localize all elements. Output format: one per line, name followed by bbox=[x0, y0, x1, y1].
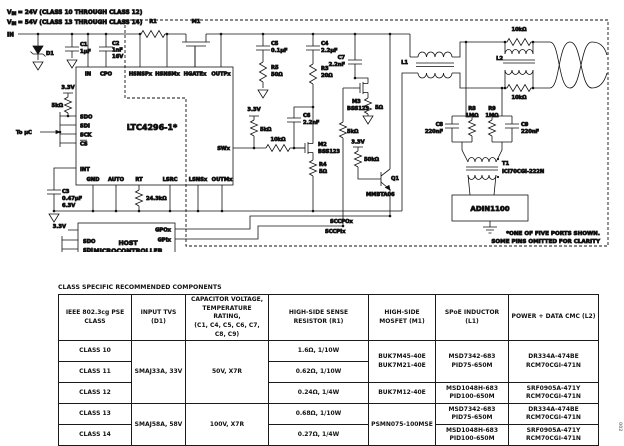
ic-name: LTC4296-1* bbox=[127, 123, 178, 132]
c6-label: C6 bbox=[303, 113, 311, 119]
capacitor-c4 bbox=[306, 46, 320, 50]
earth-ground bbox=[483, 227, 497, 233]
l2-part-line2: RCM70CGI-471N bbox=[511, 414, 596, 423]
header-r1-line1: HIGH-SIDE SENSE bbox=[271, 309, 366, 318]
capacitor-c8 bbox=[445, 124, 459, 128]
m3-source-value: 5Ω bbox=[375, 105, 384, 111]
cell-m1-class13-14: PSMN075-100MSE bbox=[369, 404, 436, 446]
pin-auto: AUTO bbox=[108, 177, 125, 183]
cell-cap-class13-14: 100V, X7R bbox=[186, 404, 269, 446]
host-name-2: MICROCONTROLLER bbox=[93, 248, 162, 252]
inductor-l1 bbox=[416, 52, 454, 78]
mosfet-m2 bbox=[294, 142, 308, 154]
resistor-r5 bbox=[258, 62, 268, 98]
cell-l2-class10-11: DR334A-474BE RCM70CGI-471N bbox=[509, 341, 599, 383]
c8-label: C8 bbox=[436, 122, 444, 128]
pin-outpx: OUTPx bbox=[211, 72, 231, 78]
r5-value: 50Ω bbox=[271, 72, 283, 78]
l1-part-line2: PID100-650M bbox=[438, 393, 506, 402]
cmc-l2 bbox=[503, 39, 535, 92]
c3-label: C3 bbox=[62, 189, 70, 195]
adin1100-label: ADIN1100 bbox=[470, 205, 509, 213]
components-table: IEEE 802.3cg PSE CLASS INPUT TVS (D1) CA… bbox=[58, 294, 599, 446]
m1-label: M1 bbox=[192, 19, 201, 25]
cell-r1-class13: 0.68Ω, 1/10W bbox=[269, 404, 369, 425]
l2-part-line1: SRF0905A-471Y bbox=[511, 385, 596, 394]
capacitor-c5 bbox=[256, 46, 270, 50]
host-name-1: HOST bbox=[118, 240, 138, 247]
pin-sck: SCK bbox=[80, 133, 93, 139]
q1-base-value: 50kΩ bbox=[364, 157, 380, 163]
r4-label: R4 bbox=[319, 162, 327, 168]
sw-3v3-label: 3.3V bbox=[247, 107, 260, 113]
header-m1-line1: HIGH-SIDE bbox=[371, 309, 433, 318]
pin-lsnsx: LSNSx bbox=[189, 177, 208, 183]
cell-l1-class10-11: MSD7342-683 PID75-650M bbox=[436, 341, 509, 383]
c9-label: C9 bbox=[521, 122, 529, 128]
table-row-class10: CLASS 10 SMAJ33A, 33V 50V, X7R 1.6Ω, 1/1… bbox=[59, 341, 599, 362]
c8-value: 220nF bbox=[425, 129, 444, 135]
cell-l2-class13: DR334A-474BE RCM70CGI-471N bbox=[509, 404, 599, 425]
to-uc-label: To µC bbox=[16, 130, 32, 136]
resistor-q1-base bbox=[355, 151, 362, 167]
pin-hgatex: HGATEx bbox=[184, 72, 207, 78]
transformer-t1 bbox=[466, 158, 498, 180]
capacitor-c9 bbox=[505, 124, 519, 128]
c3-voltage: 6.3V bbox=[62, 203, 75, 209]
twisted-pair-cable bbox=[550, 42, 607, 88]
pin-swx: SWx bbox=[217, 146, 230, 152]
capacitor-c6 bbox=[287, 118, 301, 122]
m1-part-line2: BUK7M21-40E bbox=[371, 362, 433, 371]
c1-label: C1 bbox=[80, 42, 88, 48]
resistor-rt bbox=[136, 190, 143, 206]
c1-value: 1µF bbox=[80, 49, 91, 55]
r3-value: 20Ω bbox=[321, 73, 333, 79]
cell-l1-class12: MSD1048H-683 PID100-650M bbox=[436, 383, 509, 404]
d1-label: D1 bbox=[46, 51, 54, 57]
spi-pullup-value: 5kΩ bbox=[52, 103, 64, 109]
cell-tvs-class10-12: SMAJ33A, 33V bbox=[132, 341, 186, 404]
resistor-r3 bbox=[310, 64, 317, 84]
l1-part-line2: PID75-650M bbox=[438, 414, 506, 423]
r8-label: R8 bbox=[468, 106, 476, 112]
l2-part-line1: DR334A-474BE bbox=[511, 353, 596, 362]
l1-part-line1: MSD1048H-683 bbox=[438, 385, 506, 394]
sccpix-label: SCCPIx bbox=[325, 229, 346, 235]
pin-rt: RT bbox=[135, 177, 143, 183]
resistor-sw-pullup bbox=[251, 120, 258, 136]
header-cap-line2: TEMPERATURE RATING, bbox=[188, 305, 266, 322]
cell-class14: CLASS 14 bbox=[59, 425, 132, 446]
datasheet-page: { "schematic": { "vin1": {"v":"V","sub":… bbox=[0, 0, 624, 441]
table-title: CLASS SPECIFIC RECOMMENDED COMPONENTS bbox=[58, 284, 624, 291]
resistor-r4 bbox=[310, 160, 317, 176]
l2-rtop-value: 10kΩ bbox=[511, 27, 527, 33]
pin-sdo: SDO bbox=[80, 115, 93, 121]
resistor-spi-pullup bbox=[65, 97, 72, 113]
header-sense-resistor: HIGH-SIDE SENSE RESISTOR (R1) bbox=[269, 295, 369, 341]
l2-part-line1: SRF0905A-471Y bbox=[511, 427, 596, 436]
header-power-data-cmc: POWER + DATA CMC (L2) bbox=[509, 295, 599, 341]
pin-sdi: SDI bbox=[80, 124, 90, 130]
pin-hsnspx: HSNSPx bbox=[129, 72, 153, 78]
cell-r1-class11: 0.62Ω, 1/10W bbox=[269, 362, 369, 383]
transistor-q1 bbox=[381, 169, 390, 190]
cell-r1-class10: 1.6Ω, 1/10W bbox=[269, 341, 369, 362]
cell-tvs-class13-14: SMAJ58A, 58V bbox=[132, 404, 186, 446]
resistor-r8 bbox=[469, 120, 476, 136]
c2-label: C2 bbox=[112, 41, 120, 47]
header-pse-class: IEEE 802.3cg PSE CLASS bbox=[59, 295, 132, 341]
sw-series-value: 10kΩ bbox=[270, 137, 286, 143]
header-input-tvs: INPUT TVS (D1) bbox=[132, 295, 186, 341]
l2-part-line2: RCM70CGI-471N bbox=[511, 435, 596, 444]
pin-hsnsmx: HSNSMx bbox=[155, 72, 180, 78]
l1-label: L1 bbox=[401, 60, 408, 66]
c5-label: C5 bbox=[271, 41, 279, 47]
mosfet-m3 bbox=[360, 82, 363, 94]
q1-part: MMBTA06 bbox=[366, 192, 395, 198]
c4-value: 2.2µF bbox=[321, 48, 338, 54]
cell-cap-class10-12: 50V, X7R bbox=[186, 341, 269, 404]
c2-value: 1nF bbox=[112, 48, 123, 54]
r9-value: 1MΩ bbox=[485, 113, 499, 119]
t1-part: ICI70CGI-222N bbox=[502, 169, 544, 175]
cell-class13: CLASS 13 bbox=[59, 404, 132, 425]
in-label: IN bbox=[7, 33, 14, 39]
header-cap-rating: CAPACITOR VOLTAGE, TEMPERATURE RATING, (… bbox=[186, 295, 269, 341]
header-spoe-inductor: SPoE INDUCTOR (L1) bbox=[436, 295, 509, 341]
header-row: IEEE 802.3cg PSE CLASS INPUT TVS (D1) CA… bbox=[59, 295, 599, 341]
schematic: VIN= 24V (CLASS 10 THROUGH CLASS 12) VIN… bbox=[0, 0, 624, 252]
l1-part-line2: PID75-650M bbox=[438, 362, 506, 371]
cell-l1-class13: MSD7342-683 PID75-650M bbox=[436, 404, 509, 425]
r1-label: R1 bbox=[149, 19, 157, 25]
figure-id: 002 bbox=[617, 422, 622, 431]
resistor-m3-pulldown bbox=[340, 122, 347, 138]
cell-class11: CLASS 11 bbox=[59, 362, 132, 383]
c4-label: C4 bbox=[321, 41, 329, 47]
c5-value: 0.1µF bbox=[271, 48, 288, 54]
l2-part-line1: DR334A-474BE bbox=[511, 406, 596, 415]
r9-label: R9 bbox=[488, 106, 496, 112]
pin-lsrc: LSRC bbox=[163, 177, 178, 183]
cell-m1-class12: BUK7M12-40E bbox=[369, 383, 436, 404]
resistor-r1 bbox=[141, 31, 165, 38]
cell-class12: CLASS 12 bbox=[59, 383, 132, 404]
resistor-r9 bbox=[489, 120, 496, 136]
t1-label: T1 bbox=[502, 161, 510, 167]
capacitor-c7 bbox=[348, 60, 362, 64]
cell-l2-class12: SRF0905A-471Y RCM70CGI-471N bbox=[509, 383, 599, 404]
sw-pullup-value: 5kΩ bbox=[260, 127, 272, 133]
c9-value: 220nF bbox=[521, 129, 540, 135]
m3-part: BSS123 bbox=[347, 106, 369, 112]
port-note-1: *ONE OF FIVE PORTS SHOWN. bbox=[506, 231, 600, 237]
c7-label: C7 bbox=[338, 55, 346, 61]
cell-l1-class14: MSD1048H-683 PID100-650M bbox=[436, 425, 509, 446]
c7-value: 2.2nF bbox=[329, 62, 346, 68]
host-3v3-label: 3.3V bbox=[53, 224, 66, 230]
r5-label: R5 bbox=[271, 65, 279, 71]
q1-label: Q1 bbox=[391, 176, 399, 182]
m1-part-line1: BUK7M45-40E bbox=[371, 353, 433, 362]
cell-class10: CLASS 10 bbox=[59, 341, 132, 362]
port-note-2: SOME PINS OMITTED FOR CLARITY bbox=[491, 239, 601, 245]
l1-part-line1: MSD7342-683 bbox=[438, 353, 506, 362]
spi-3v3-label: 3.3V bbox=[61, 85, 74, 91]
table-row-class13: CLASS 13 SMAJ58A, 58V 100V, X7R 0.68Ω, 1… bbox=[59, 404, 599, 425]
cell-r1-class12: 0.24Ω, 1/4W bbox=[269, 383, 369, 404]
pin-outmx: OUTMx bbox=[212, 177, 233, 183]
c6-value: 2.2nF bbox=[303, 120, 320, 126]
resistor-sw-series bbox=[266, 145, 290, 152]
header-cap-line3: (C1, C4, C5, C6, C7, C8, C9) bbox=[188, 322, 266, 339]
header-m1-line2: MOSFET (M1) bbox=[371, 318, 433, 327]
host-pin-sdo: SDO bbox=[83, 239, 96, 245]
host-pin-sdi: SDI bbox=[83, 248, 93, 252]
l2-part-line2: RCM70CGI-471N bbox=[511, 362, 596, 371]
cell-l2-class14: SRF0905A-471Y RCM70CGI-471N bbox=[509, 425, 599, 446]
m2-label: M2 bbox=[318, 142, 327, 148]
l1-part-line1: MSD1048H-683 bbox=[438, 427, 506, 436]
l1-part-line1: MSD7342-683 bbox=[438, 406, 506, 415]
c3-value: 0.47µF bbox=[62, 196, 83, 202]
host-pin-gpix: GPIx bbox=[158, 238, 172, 244]
l2-rbot-value: 10kΩ bbox=[511, 95, 527, 101]
l1-part-line2: PID100-650M bbox=[438, 435, 506, 444]
pin-int: INT bbox=[80, 167, 90, 173]
q1-3v3-label: 3.3V bbox=[351, 140, 364, 146]
vin-note-2: VIN= 54V (CLASS 13 THROUGH CLASS 14) bbox=[7, 20, 143, 26]
vin-note-1: VIN= 24V (CLASS 10 THROUGH CLASS 12) bbox=[7, 10, 143, 16]
host-pin-gpox: GPOx bbox=[155, 228, 171, 234]
pin-in: IN bbox=[85, 72, 91, 78]
r8-value: 1MΩ bbox=[465, 113, 479, 119]
mosfet-m1 bbox=[182, 34, 210, 67]
sccpox-label: SCCPOx bbox=[330, 219, 354, 225]
l2-label: L2 bbox=[496, 56, 503, 62]
r4-value: 5Ω bbox=[319, 169, 328, 175]
m3-label: M3 bbox=[352, 99, 361, 105]
pin-cs: CS bbox=[80, 142, 88, 148]
rt-resistor-value: 24.3kΩ bbox=[146, 196, 167, 202]
l2-part-line2: RCM70CGI-471N bbox=[511, 393, 596, 402]
cell-m1-class10-11: BUK7M45-40E BUK7M21-40E bbox=[369, 341, 436, 383]
capacitor-c2 bbox=[99, 47, 113, 51]
cell-r1-class14: 0.27Ω, 1/4W bbox=[269, 425, 369, 446]
header-r1-line2: RESISTOR (R1) bbox=[271, 318, 366, 327]
c2-voltage: 16V bbox=[112, 54, 123, 60]
pin-gnd: GND bbox=[87, 177, 101, 183]
m3-pulldown-value: 5kΩ bbox=[347, 129, 359, 135]
header-cap-line1: CAPACITOR VOLTAGE, bbox=[188, 296, 266, 305]
m2-part: BSS123 bbox=[318, 149, 340, 155]
header-mosfet: HIGH-SIDE MOSFET (M1) bbox=[369, 295, 436, 341]
pin-cpo: CPO bbox=[100, 72, 113, 78]
